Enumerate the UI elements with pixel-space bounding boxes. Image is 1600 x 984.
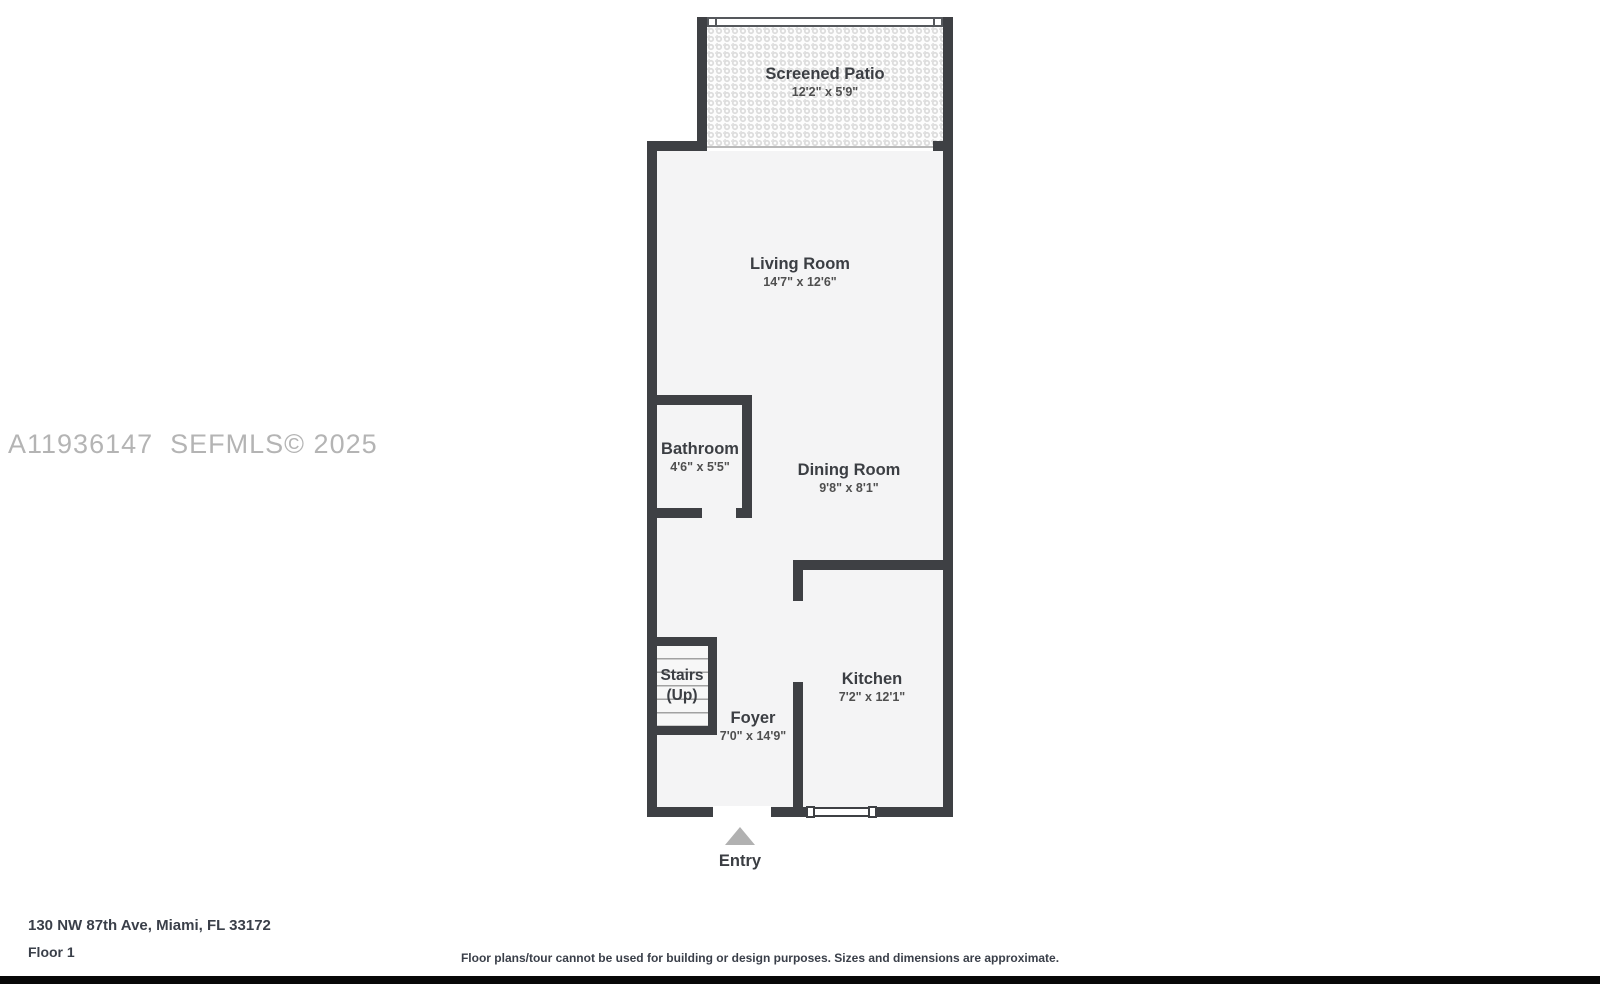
room-name: Bathroom: [661, 440, 739, 459]
room-dimensions: 4'6" x 5'5": [661, 459, 739, 476]
patio-screen-post-right: [933, 17, 943, 27]
outer-wall-right: [943, 17, 953, 817]
top-wall-left-segment: [647, 141, 707, 151]
stairs-wall-right: [708, 637, 717, 735]
kitchen-window-jamb-right: [868, 806, 877, 818]
floor-number-label: Floor 1: [28, 944, 75, 960]
patio-screen-post-left: [707, 17, 717, 27]
property-address: 130 NW 87th Ave, Miami, FL 33172: [28, 917, 271, 934]
disclaimer-text: Floor plans/tour cannot be used for buil…: [461, 951, 1059, 965]
room-name: Foyer: [720, 709, 786, 728]
room-label-kitchen: Kitchen 7'2" x 12'1": [839, 670, 905, 706]
room-label-stairs: Stairs (Up): [660, 666, 703, 706]
patio-wall-left: [697, 17, 707, 151]
footer-bar: [0, 976, 1600, 984]
top-wall-right-stub: [933, 141, 943, 151]
room-dimensions: 7'0" x 14'9": [720, 728, 786, 745]
bathroom-wall-bottom-left: [647, 508, 702, 518]
room-label-dining-room: Dining Room 9'8" x 8'1": [798, 461, 901, 497]
room-name: Stairs: [660, 666, 703, 686]
outer-wall-left: [647, 141, 657, 817]
stairs-wall-top: [647, 637, 717, 646]
entry-arrow-icon: [725, 827, 755, 845]
kitchen-wall-left-upper: [793, 560, 803, 601]
room-dimensions: 14'7" x 12'6": [750, 274, 850, 291]
floor-plan-canvas: A11936147 SEFMLS© 2025 Screened Patio 12…: [0, 0, 1600, 984]
room-label-bathroom: Bathroom 4'6" x 5'5": [661, 440, 739, 476]
patio-screen-wall: [707, 17, 943, 27]
room-dimensions: 12'2" x 5'9": [765, 84, 884, 101]
entry-label: Entry: [719, 852, 761, 871]
room-label-living-room: Living Room 14'7" x 12'6": [750, 255, 850, 291]
room-dimensions: 9'8" x 8'1": [798, 480, 901, 497]
room-dimensions: 7'2" x 12'1": [839, 689, 905, 706]
kitchen-window-jamb-left: [806, 806, 815, 818]
room-name: Dining Room: [798, 461, 901, 480]
room-label-foyer: Foyer 7'0" x 14'9": [720, 709, 786, 745]
mls-watermark: A11936147 SEFMLS© 2025: [8, 429, 378, 460]
stairs-wall-bottom: [647, 726, 717, 735]
bathroom-wall-top: [647, 395, 752, 405]
room-name: Living Room: [750, 255, 850, 274]
kitchen-wall-top: [793, 560, 953, 570]
bathroom-wall-bottom-right: [736, 508, 752, 518]
entry-door-opening: [713, 806, 771, 819]
patio-sliding-door-line: [707, 146, 943, 148]
room-name: Kitchen: [839, 670, 905, 689]
room-name: Screened Patio: [765, 65, 884, 84]
room-label-screened-patio: Screened Patio 12'2" x 5'9": [765, 65, 884, 101]
kitchen-wall-left-lower: [793, 682, 803, 817]
kitchen-window: [810, 807, 873, 817]
bathroom-wall-right: [742, 395, 752, 518]
room-name-sub: (Up): [660, 686, 703, 706]
